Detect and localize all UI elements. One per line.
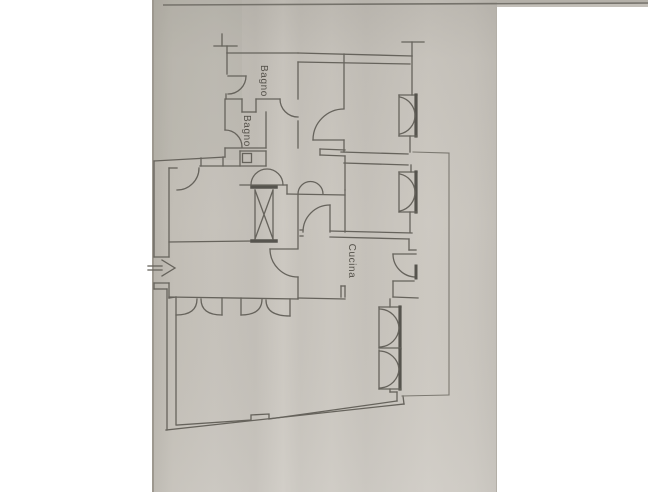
bathroom-1-label: Bagno xyxy=(258,65,269,97)
kitchen-label: Cucina xyxy=(346,244,357,279)
bathroom-2-label: Bagno xyxy=(241,115,252,147)
photo-paper xyxy=(152,0,497,492)
listing-photo-viewport: Bagno Bagno Cucina xyxy=(0,0,648,492)
floor-plan-photo[interactable]: Bagno Bagno Cucina xyxy=(0,0,648,492)
